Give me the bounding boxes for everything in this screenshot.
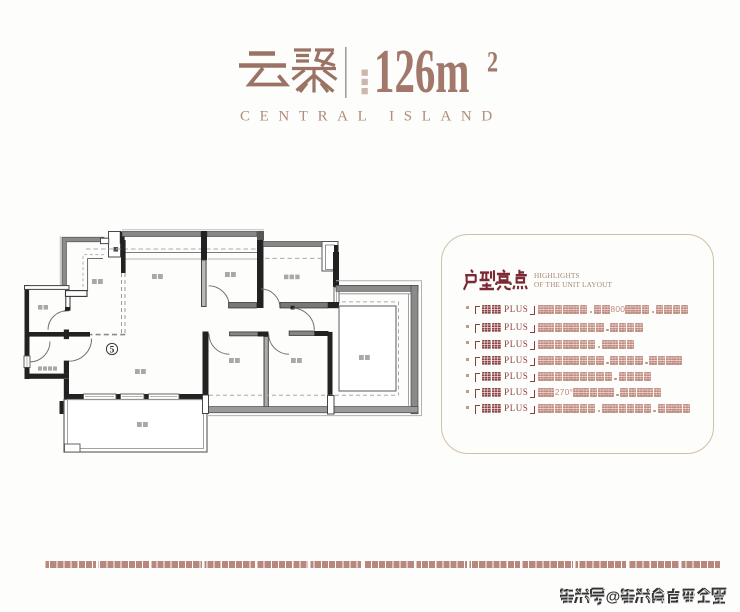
svg-text:@: @ bbox=[606, 589, 621, 606]
